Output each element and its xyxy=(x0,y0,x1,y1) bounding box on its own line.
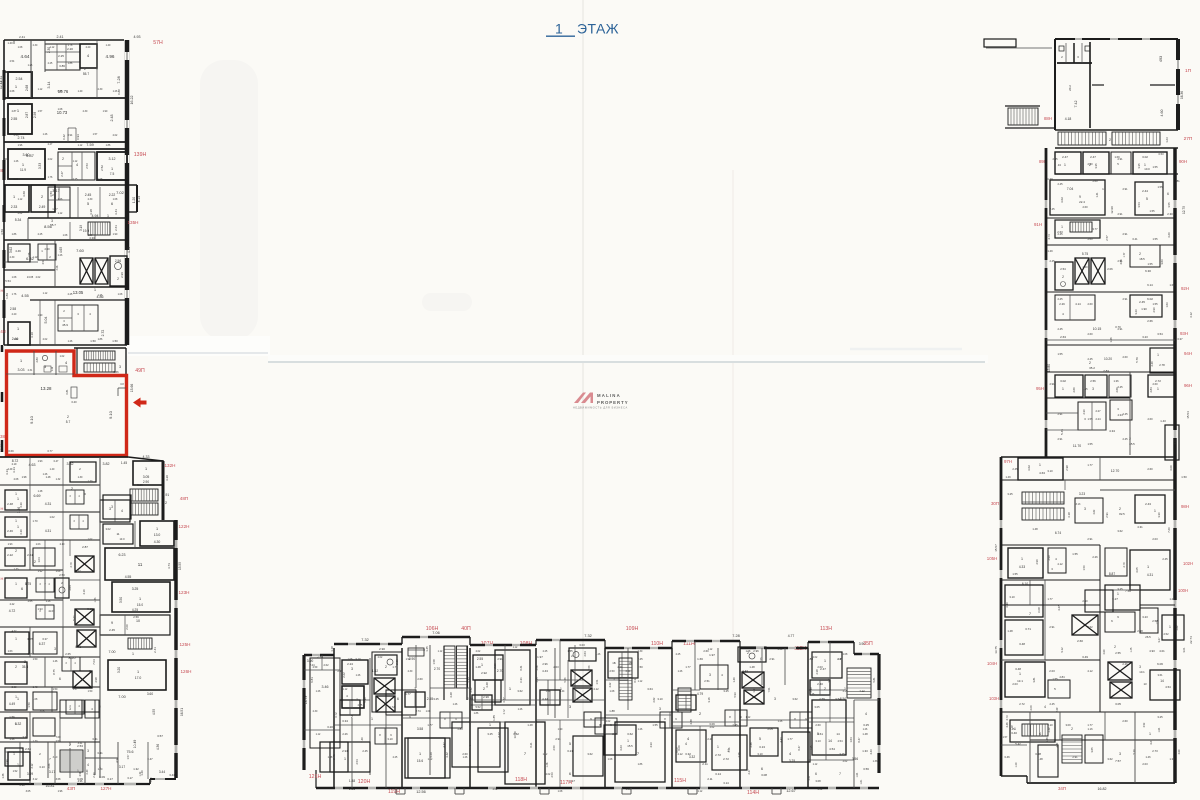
svg-text:1.48: 1.48 xyxy=(38,490,43,493)
svg-text:5.79: 5.79 xyxy=(1135,357,1139,363)
svg-text:1.40: 1.40 xyxy=(78,90,83,93)
svg-text:3.18: 3.18 xyxy=(1067,512,1071,518)
svg-text:3.12: 3.12 xyxy=(33,778,38,781)
svg-text:2.91: 2.91 xyxy=(1057,412,1063,416)
svg-text:0.42: 0.42 xyxy=(62,134,66,140)
svg-text:2.68: 2.68 xyxy=(25,85,29,91)
svg-text:1.51: 1.51 xyxy=(596,679,599,684)
svg-text:1.55: 1.55 xyxy=(837,657,843,661)
svg-text:3.57: 3.57 xyxy=(157,734,163,738)
svg-text:1.23: 1.23 xyxy=(1169,597,1175,601)
svg-text:7.00: 7.00 xyxy=(118,695,125,699)
svg-text:1.77: 1.77 xyxy=(685,665,691,669)
svg-text:9.10: 9.10 xyxy=(108,410,113,419)
svg-text:1.32: 1.32 xyxy=(56,478,61,481)
svg-text:15.54: 15.54 xyxy=(1186,411,1190,419)
svg-text:1.55: 1.55 xyxy=(652,723,658,727)
svg-text:2.74: 2.74 xyxy=(18,136,25,140)
svg-text:1.18: 1.18 xyxy=(330,646,334,652)
svg-text:1.26: 1.26 xyxy=(28,64,33,67)
svg-text:2.78: 2.78 xyxy=(1159,363,1165,367)
svg-text:4: 4 xyxy=(76,163,78,167)
svg-text:2.30: 2.30 xyxy=(638,650,643,653)
svg-text:1.26: 1.26 xyxy=(356,674,361,677)
svg-text:2.50: 2.50 xyxy=(59,573,65,577)
svg-text:2.30: 2.30 xyxy=(1167,212,1173,216)
svg-text:5: 5 xyxy=(759,737,761,741)
svg-text:4.96: 4.96 xyxy=(106,54,115,59)
svg-text:2.49: 2.49 xyxy=(1150,361,1154,367)
svg-text:1.90: 1.90 xyxy=(113,233,118,236)
svg-text:7.32: 7.32 xyxy=(361,638,368,642)
svg-text:2.72: 2.72 xyxy=(101,330,105,337)
svg-text:3.17: 3.17 xyxy=(107,777,113,781)
svg-text:2.60: 2.60 xyxy=(1087,332,1093,336)
svg-text:1.12: 1.12 xyxy=(18,198,23,201)
svg-text:1.12: 1.12 xyxy=(746,716,751,719)
svg-text:2.70: 2.70 xyxy=(434,667,440,671)
svg-text:2.65: 2.65 xyxy=(65,652,71,656)
svg-text:1: 1 xyxy=(371,717,373,721)
svg-text:1.86: 1.86 xyxy=(474,712,479,715)
svg-text:6: 6 xyxy=(59,677,61,681)
svg-text:8.75: 8.75 xyxy=(25,582,31,586)
svg-text:3.54: 3.54 xyxy=(1137,202,1141,208)
svg-text:1.55: 1.55 xyxy=(1152,237,1158,241)
svg-text:1: 1 xyxy=(156,527,158,531)
svg-text:3.13: 3.13 xyxy=(759,745,765,749)
svg-text:34П: 34П xyxy=(1058,786,1066,791)
svg-text:2.84: 2.84 xyxy=(1059,675,1065,679)
svg-text:1.26: 1.26 xyxy=(43,133,48,136)
svg-text:1: 1 xyxy=(1039,463,1041,467)
svg-text:2.54: 2.54 xyxy=(355,759,359,765)
svg-text:3.58: 3.58 xyxy=(417,727,423,731)
svg-text:1.76: 1.76 xyxy=(12,293,17,296)
svg-text:3.12: 3.12 xyxy=(109,157,116,161)
svg-text:6: 6 xyxy=(815,772,817,776)
svg-text:2.26: 2.26 xyxy=(707,737,713,741)
svg-text:2.66: 2.66 xyxy=(1147,319,1153,323)
svg-text:1.30: 1.30 xyxy=(78,476,83,479)
svg-text:12.90: 12.90 xyxy=(1110,206,1114,214)
svg-text:2.60: 2.60 xyxy=(1147,417,1153,421)
svg-text:2.60: 2.60 xyxy=(1092,179,1098,183)
svg-text:2.02: 2.02 xyxy=(476,650,481,653)
svg-text:4.42: 4.42 xyxy=(445,752,449,758)
svg-text:НЕДВИЖИМОСТЬ ДЛЯ БИЗНЕСА: НЕДВИЖИМОСТЬ ДЛЯ БИЗНЕСА xyxy=(573,406,628,410)
svg-text:2.87: 2.87 xyxy=(25,112,29,118)
svg-text:97Н: 97Н xyxy=(1004,459,1012,464)
svg-text:2.08: 2.08 xyxy=(14,478,19,481)
svg-text:1.55: 1.55 xyxy=(1087,442,1093,446)
svg-text:2.39: 2.39 xyxy=(1048,727,1051,732)
svg-text:1.93: 1.93 xyxy=(38,460,43,463)
svg-text:3.20: 3.20 xyxy=(327,725,333,729)
svg-text:1.57: 1.57 xyxy=(73,688,78,691)
svg-text:1.48: 1.48 xyxy=(33,686,38,689)
svg-text:0.88: 0.88 xyxy=(117,89,121,95)
svg-text:1: 1 xyxy=(1064,163,1066,167)
svg-text:3.10: 3.10 xyxy=(1047,723,1053,727)
svg-text:1: 1 xyxy=(627,739,629,743)
svg-text:3.62: 3.62 xyxy=(1117,529,1123,533)
svg-text:3.14: 3.14 xyxy=(47,82,51,89)
svg-text:3.17: 3.17 xyxy=(569,779,575,783)
svg-text:4.15: 4.15 xyxy=(137,196,141,203)
svg-text:95Н: 95Н xyxy=(1036,386,1044,391)
svg-text:10.1: 10.1 xyxy=(1139,670,1145,674)
svg-text:4.28: 4.28 xyxy=(449,692,453,698)
svg-text:13.05: 13.05 xyxy=(27,275,34,279)
svg-text:15.80: 15.80 xyxy=(1047,364,1051,372)
svg-text:3.86: 3.86 xyxy=(59,64,65,68)
svg-text:3.02: 3.02 xyxy=(1142,155,1148,159)
svg-text:1.26: 1.26 xyxy=(863,728,868,731)
svg-text:1.66: 1.66 xyxy=(697,657,703,661)
svg-text:2: 2 xyxy=(1089,361,1091,365)
svg-text:2.46: 2.46 xyxy=(536,665,539,670)
svg-text:2.60: 2.60 xyxy=(815,723,821,727)
svg-text:2.45: 2.45 xyxy=(1049,207,1055,211)
svg-text:2.03: 2.03 xyxy=(553,665,559,669)
svg-text:6: 6 xyxy=(111,202,113,206)
svg-text:1: 1 xyxy=(1154,509,1156,513)
svg-text:20.2: 20.2 xyxy=(1068,85,1072,91)
svg-text:3.17: 3.17 xyxy=(52,189,59,193)
svg-text:93Н: 93Н xyxy=(1180,331,1188,336)
svg-text:3.44: 3.44 xyxy=(169,773,175,777)
svg-text:1: 1 xyxy=(17,763,19,767)
svg-text:3.56: 3.56 xyxy=(852,757,858,761)
svg-text:2.60: 2.60 xyxy=(1122,719,1128,723)
svg-text:3.63: 3.63 xyxy=(1160,259,1164,265)
svg-text:1.57: 1.57 xyxy=(126,754,130,760)
svg-text:1.46: 1.46 xyxy=(1145,755,1151,759)
svg-text:14: 14 xyxy=(828,739,832,743)
svg-text:2.91: 2.91 xyxy=(1049,382,1055,386)
svg-text:3.16: 3.16 xyxy=(707,697,711,703)
svg-text:1: 1 xyxy=(139,597,141,601)
svg-text:6.69: 6.69 xyxy=(34,494,41,498)
svg-text:7.42: 7.42 xyxy=(1074,101,1078,108)
svg-text:2.90: 2.90 xyxy=(379,647,385,651)
svg-text:2.48: 2.48 xyxy=(110,115,114,122)
svg-text:1: 1 xyxy=(15,519,17,523)
svg-text:1.26: 1.26 xyxy=(810,693,815,696)
svg-text:1: 1 xyxy=(489,723,491,727)
svg-text:3.25: 3.25 xyxy=(1007,492,1013,496)
svg-text:11.70: 11.70 xyxy=(1073,444,1081,448)
svg-text:3.10: 3.10 xyxy=(387,737,393,741)
svg-text:3.20: 3.20 xyxy=(117,667,121,673)
svg-text:1.12: 1.12 xyxy=(38,88,43,91)
svg-text:3.63: 3.63 xyxy=(619,745,623,751)
svg-text:1: 1 xyxy=(17,497,19,501)
svg-text:2.91: 2.91 xyxy=(1117,327,1123,331)
svg-text:16.81: 16.81 xyxy=(46,784,55,788)
svg-text:2: 2 xyxy=(62,157,64,161)
svg-text:22.74: 22.74 xyxy=(1189,636,1193,644)
svg-text:4.63: 4.63 xyxy=(1039,471,1045,475)
svg-text:1: 1 xyxy=(419,752,421,756)
svg-text:1.64: 1.64 xyxy=(1158,727,1161,732)
svg-text:2.20: 2.20 xyxy=(14,178,19,181)
svg-text:3.60: 3.60 xyxy=(23,153,30,157)
svg-text:2.91: 2.91 xyxy=(1057,437,1063,441)
svg-text:2.54: 2.54 xyxy=(16,77,23,81)
svg-text:3.23: 3.23 xyxy=(1134,309,1138,315)
svg-text:2.02: 2.02 xyxy=(18,212,23,215)
svg-text:75.6: 75.6 xyxy=(127,750,134,754)
svg-text:3.08: 3.08 xyxy=(761,773,767,777)
svg-text:3.25: 3.25 xyxy=(1117,587,1123,591)
svg-text:4.63: 4.63 xyxy=(29,463,36,467)
svg-text:2.91: 2.91 xyxy=(1122,297,1128,301)
svg-text:3.62: 3.62 xyxy=(587,752,593,756)
svg-text:4.54: 4.54 xyxy=(1165,685,1171,689)
svg-text:2.45: 2.45 xyxy=(85,193,92,197)
svg-text:2.30: 2.30 xyxy=(778,648,783,651)
svg-text:3.25: 3.25 xyxy=(487,732,493,736)
svg-text:1.12: 1.12 xyxy=(708,648,713,651)
svg-text:1.26: 1.26 xyxy=(518,708,523,711)
svg-text:92Н: 92Н xyxy=(1181,286,1189,291)
svg-text:3.05: 3.05 xyxy=(1135,567,1139,573)
svg-text:6.37: 6.37 xyxy=(39,642,46,646)
svg-text:2.50: 2.50 xyxy=(609,669,615,673)
svg-text:1: 1 xyxy=(13,195,15,199)
svg-text:2.33: 2.33 xyxy=(11,205,18,209)
svg-text:10.20: 10.20 xyxy=(1104,357,1112,361)
svg-text:6: 6 xyxy=(569,772,571,776)
svg-text:16.22: 16.22 xyxy=(130,96,134,105)
svg-text:1.48: 1.48 xyxy=(475,665,481,669)
svg-text:3.49: 3.49 xyxy=(1082,655,1088,659)
svg-text:100Н: 100Н xyxy=(1178,588,1188,593)
svg-text:6.08: 6.08 xyxy=(1037,607,1041,613)
svg-text:6.74: 6.74 xyxy=(1055,531,1061,535)
svg-text:6.23: 6.23 xyxy=(119,553,126,557)
svg-text:2.53: 2.53 xyxy=(550,772,554,778)
svg-text:1.86: 1.86 xyxy=(638,763,643,766)
svg-text:4.14: 4.14 xyxy=(1075,302,1081,306)
svg-text:1: 1 xyxy=(15,722,17,726)
svg-text:4.31: 4.31 xyxy=(1147,573,1153,577)
svg-text:2.72: 2.72 xyxy=(723,757,729,761)
svg-text:4.96: 4.96 xyxy=(79,771,82,776)
svg-text:1: 1 xyxy=(99,765,101,769)
svg-text:6.02: 6.02 xyxy=(1147,297,1153,301)
svg-text:13.0: 13.0 xyxy=(119,537,125,541)
svg-text:4.18: 4.18 xyxy=(1065,117,1072,121)
svg-text:4.36: 4.36 xyxy=(156,744,160,750)
svg-text:1.12: 1.12 xyxy=(78,144,83,147)
svg-text:1.77: 1.77 xyxy=(1087,463,1093,467)
svg-text:2.55: 2.55 xyxy=(14,134,19,137)
svg-text:3.05: 3.05 xyxy=(26,790,31,793)
svg-text:4.28: 4.28 xyxy=(485,682,489,688)
svg-text:2.98: 2.98 xyxy=(94,677,98,683)
svg-text:1.43: 1.43 xyxy=(1160,419,1166,423)
svg-text:1.12: 1.12 xyxy=(698,790,703,793)
svg-text:1: 1 xyxy=(1061,225,1063,229)
svg-text:2.36: 2.36 xyxy=(737,752,741,758)
svg-text:2.44: 2.44 xyxy=(1142,189,1148,193)
svg-text:2.69: 2.69 xyxy=(1072,387,1076,393)
svg-text:2.03: 2.03 xyxy=(1012,682,1018,686)
svg-text:2: 2 xyxy=(483,687,485,691)
svg-text:2.27: 2.27 xyxy=(60,171,64,177)
svg-text:2.73: 2.73 xyxy=(1152,749,1158,753)
svg-text:1.36: 1.36 xyxy=(2,773,5,778)
svg-text:122Н: 122Н xyxy=(179,524,190,529)
svg-text:4: 4 xyxy=(1044,705,1046,709)
svg-text:4.55: 4.55 xyxy=(125,575,132,579)
svg-text:13.05: 13.05 xyxy=(73,290,84,295)
svg-text:1.97: 1.97 xyxy=(537,655,543,659)
svg-text:2.84: 2.84 xyxy=(1149,387,1153,393)
svg-text:114Н: 114Н xyxy=(747,790,759,796)
svg-text:1: 1 xyxy=(1062,387,1064,391)
svg-text:11: 11 xyxy=(138,562,143,567)
svg-text:3.23: 3.23 xyxy=(1142,335,1148,339)
svg-text:12.67: 12.67 xyxy=(786,789,796,793)
svg-text:2.60: 2.60 xyxy=(1103,649,1106,654)
svg-text:7.28: 7.28 xyxy=(732,634,739,638)
svg-text:2.52: 2.52 xyxy=(100,165,104,171)
svg-text:2.55: 2.55 xyxy=(11,117,18,121)
svg-text:139Н: 139Н xyxy=(134,152,147,158)
svg-text:2.02: 2.02 xyxy=(813,656,818,659)
svg-text:1.50: 1.50 xyxy=(1181,475,1187,479)
svg-text:0.88: 0.88 xyxy=(58,90,63,93)
svg-text:2.30: 2.30 xyxy=(98,88,103,91)
svg-text:7.56: 7.56 xyxy=(1125,589,1131,593)
svg-text:1.55: 1.55 xyxy=(567,649,573,653)
svg-text:2.46: 2.46 xyxy=(92,772,96,778)
svg-text:2.20: 2.20 xyxy=(86,46,91,49)
svg-text:1.12: 1.12 xyxy=(343,688,348,691)
svg-text:4.79: 4.79 xyxy=(697,692,703,696)
svg-text:3.17: 3.17 xyxy=(119,765,125,769)
svg-text:2.60: 2.60 xyxy=(1082,205,1088,209)
svg-text:2.45: 2.45 xyxy=(1117,385,1123,389)
svg-text:2.46: 2.46 xyxy=(810,745,813,750)
svg-text:1.50: 1.50 xyxy=(90,339,96,343)
svg-text:90Н: 90Н xyxy=(1179,159,1187,164)
svg-text:2.03: 2.03 xyxy=(817,665,823,669)
svg-text:0.41: 0.41 xyxy=(1132,237,1138,241)
svg-text:4: 4 xyxy=(1039,732,1041,736)
svg-text:2.30: 2.30 xyxy=(33,44,38,47)
svg-text:1.63: 1.63 xyxy=(1165,137,1169,143)
svg-text:4.12: 4.12 xyxy=(593,687,599,691)
svg-text:1.26: 1.26 xyxy=(88,234,93,237)
svg-text:6.34: 6.34 xyxy=(633,677,637,683)
svg-text:2.45: 2.45 xyxy=(1057,232,1063,236)
svg-text:1.90: 1.90 xyxy=(1141,307,1147,311)
svg-text:3: 3 xyxy=(1084,507,1086,511)
svg-text:2.02: 2.02 xyxy=(710,726,715,729)
svg-text:2.45: 2.45 xyxy=(1009,727,1015,731)
svg-text:1.40: 1.40 xyxy=(106,44,111,47)
svg-text:5.93: 5.93 xyxy=(733,692,737,698)
svg-text:3.23: 3.23 xyxy=(1142,615,1148,619)
svg-text:3.05: 3.05 xyxy=(814,705,820,709)
svg-text:1.33: 1.33 xyxy=(14,568,19,571)
svg-text:2.50: 2.50 xyxy=(637,665,643,669)
svg-text:1.96: 1.96 xyxy=(58,790,63,793)
svg-text:2.22: 2.22 xyxy=(109,193,116,197)
svg-text:4.54: 4.54 xyxy=(829,747,835,751)
svg-text:1.98: 1.98 xyxy=(22,476,27,479)
svg-text:1.86: 1.86 xyxy=(98,338,103,341)
svg-text:1.77: 1.77 xyxy=(1087,723,1093,727)
svg-text:2.59: 2.59 xyxy=(133,615,139,619)
svg-text:2.19: 2.19 xyxy=(12,463,17,466)
svg-text:1.08: 1.08 xyxy=(608,758,613,761)
svg-text:2.02: 2.02 xyxy=(493,788,498,791)
svg-text:2.87: 2.87 xyxy=(12,110,17,113)
svg-text:3.68: 3.68 xyxy=(56,778,61,781)
svg-text:1: 1 xyxy=(94,288,96,292)
svg-text:1.36: 1.36 xyxy=(1113,379,1119,383)
svg-text:3.25: 3.25 xyxy=(132,587,139,591)
svg-text:2.29: 2.29 xyxy=(1059,302,1065,306)
svg-text:2.60: 2.60 xyxy=(1122,355,1128,359)
svg-text:2.02: 2.02 xyxy=(113,134,118,137)
svg-text:1.40: 1.40 xyxy=(7,41,13,45)
svg-text:4.22: 4.22 xyxy=(609,682,612,687)
svg-text:1.96: 1.96 xyxy=(18,144,23,147)
svg-text:3.46: 3.46 xyxy=(1004,755,1010,759)
svg-text:1.12: 1.12 xyxy=(428,758,433,761)
svg-text:1.26: 1.26 xyxy=(463,756,468,759)
svg-text:2.27: 2.27 xyxy=(1095,409,1101,413)
svg-text:1.08: 1.08 xyxy=(63,234,68,237)
svg-text:2.56: 2.56 xyxy=(493,663,497,669)
svg-text:6.37: 6.37 xyxy=(42,637,48,641)
svg-text:1П: 1П xyxy=(1185,68,1192,74)
svg-text:4.36: 4.36 xyxy=(1045,737,1049,743)
svg-text:16.36: 16.36 xyxy=(1180,91,1184,99)
svg-text:4: 4 xyxy=(65,361,67,365)
svg-text:5.81: 5.81 xyxy=(872,677,876,683)
svg-text:1.64: 1.64 xyxy=(849,737,853,743)
svg-text:16.82: 16.82 xyxy=(1098,787,1107,791)
svg-text:26.5: 26.5 xyxy=(1145,635,1151,639)
svg-text:1: 1 xyxy=(344,757,346,761)
svg-text:1.48: 1.48 xyxy=(46,476,51,479)
svg-text:7: 7 xyxy=(1029,612,1031,616)
svg-text:1.08: 1.08 xyxy=(426,710,431,713)
svg-text:1.81: 1.81 xyxy=(860,779,863,784)
svg-text:5.54: 5.54 xyxy=(5,279,11,283)
svg-text:4.27: 4.27 xyxy=(1057,605,1061,611)
svg-text:4: 4 xyxy=(87,763,89,767)
svg-text:2.41: 2.41 xyxy=(153,647,157,653)
svg-text:2.50: 2.50 xyxy=(552,745,556,751)
svg-text:1.48: 1.48 xyxy=(1032,527,1038,531)
svg-text:1.58: 1.58 xyxy=(432,659,436,665)
svg-text:1: 1 xyxy=(111,167,113,171)
svg-text:110Н: 110Н xyxy=(651,641,663,647)
svg-text:4.55: 4.55 xyxy=(152,709,156,715)
svg-text:132Н: 132Н xyxy=(165,463,176,468)
svg-text:1: 1 xyxy=(132,652,134,656)
svg-text:1.08: 1.08 xyxy=(546,690,551,693)
